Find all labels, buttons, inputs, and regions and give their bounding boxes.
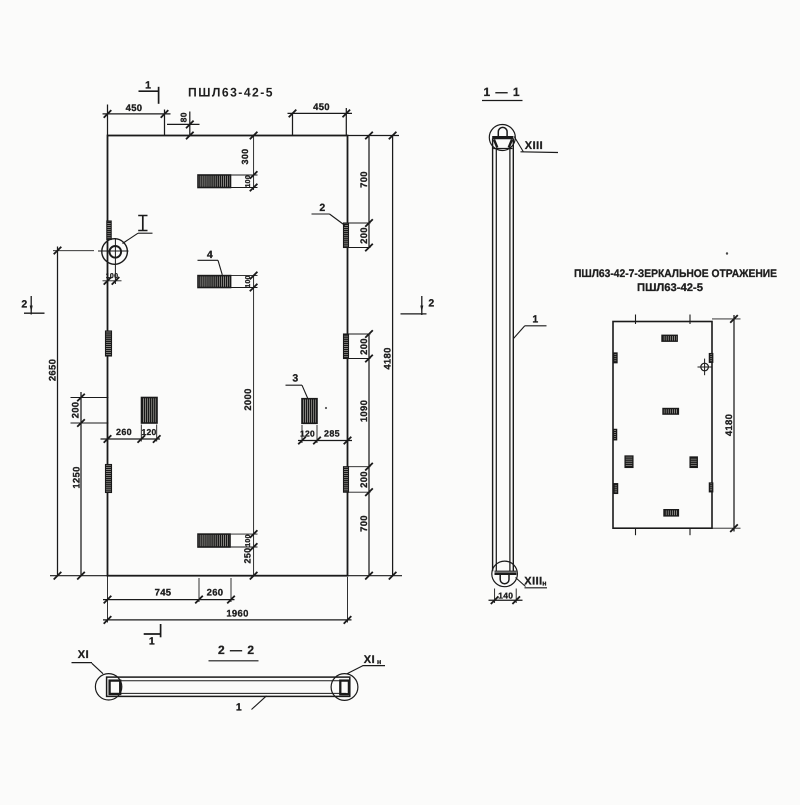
- svg-text:2: 2: [319, 202, 325, 214]
- svg-text:ПШЛ63-42-5: ПШЛ63-42-5: [188, 86, 274, 100]
- svg-text:3: 3: [292, 373, 298, 385]
- svg-text:1: 1: [145, 80, 151, 92]
- svg-text:н: н: [377, 659, 382, 666]
- svg-text:2: 2: [428, 298, 434, 310]
- svg-text:4180: 4180: [724, 414, 735, 436]
- svg-text:300: 300: [240, 149, 250, 165]
- svg-text:1090: 1090: [359, 400, 370, 422]
- svg-text:285: 285: [324, 429, 340, 439]
- svg-text:ПШЛ63-42-5: ПШЛ63-42-5: [637, 282, 703, 294]
- svg-text:80: 80: [178, 112, 188, 122]
- svg-text:ПШЛ63-42-7-ЗЕРКАЛЬНОЕ ОТРАЖЕНИ: ПШЛ63-42-7-ЗЕРКАЛЬНОЕ ОТРАЖЕНИЕ: [574, 268, 777, 280]
- svg-text:260: 260: [116, 427, 132, 437]
- svg-text:XI: XI: [78, 649, 89, 661]
- svg-text:250: 250: [243, 548, 253, 564]
- svg-text:100: 100: [106, 273, 119, 280]
- svg-text:1: 1: [149, 636, 155, 648]
- svg-text:1960: 1960: [226, 609, 248, 620]
- svg-text:н: н: [542, 581, 547, 588]
- svg-text:260: 260: [207, 588, 224, 599]
- svg-text:450: 450: [313, 102, 330, 113]
- svg-text:120: 120: [141, 427, 156, 437]
- svg-text:XI: XI: [364, 654, 375, 666]
- svg-text:1 — 1: 1 — 1: [483, 85, 520, 99]
- svg-text:100: 100: [245, 534, 252, 547]
- svg-text:100: 100: [245, 175, 252, 188]
- svg-text:140: 140: [498, 590, 513, 600]
- svg-text:1: 1: [236, 702, 242, 714]
- svg-text:4: 4: [207, 249, 213, 261]
- svg-text:200: 200: [359, 338, 370, 355]
- svg-text:2 — 2: 2 — 2: [218, 643, 255, 657]
- svg-text:745: 745: [155, 588, 172, 599]
- svg-text:2: 2: [21, 299, 27, 311]
- svg-text:XIII: XIII: [525, 140, 544, 152]
- svg-text:1: 1: [532, 314, 538, 326]
- svg-text:2650: 2650: [48, 359, 59, 381]
- svg-text:200: 200: [359, 471, 370, 488]
- svg-text:450: 450: [126, 103, 143, 114]
- svg-text:200: 200: [70, 402, 81, 419]
- svg-text:700: 700: [359, 515, 370, 532]
- svg-text:XIII: XIII: [524, 576, 543, 588]
- svg-text:1250: 1250: [71, 466, 82, 488]
- svg-text:200: 200: [359, 227, 370, 244]
- svg-text:4180: 4180: [383, 347, 394, 369]
- svg-text:700: 700: [359, 171, 370, 188]
- svg-text:2000: 2000: [243, 388, 254, 410]
- svg-text:100: 100: [245, 275, 252, 288]
